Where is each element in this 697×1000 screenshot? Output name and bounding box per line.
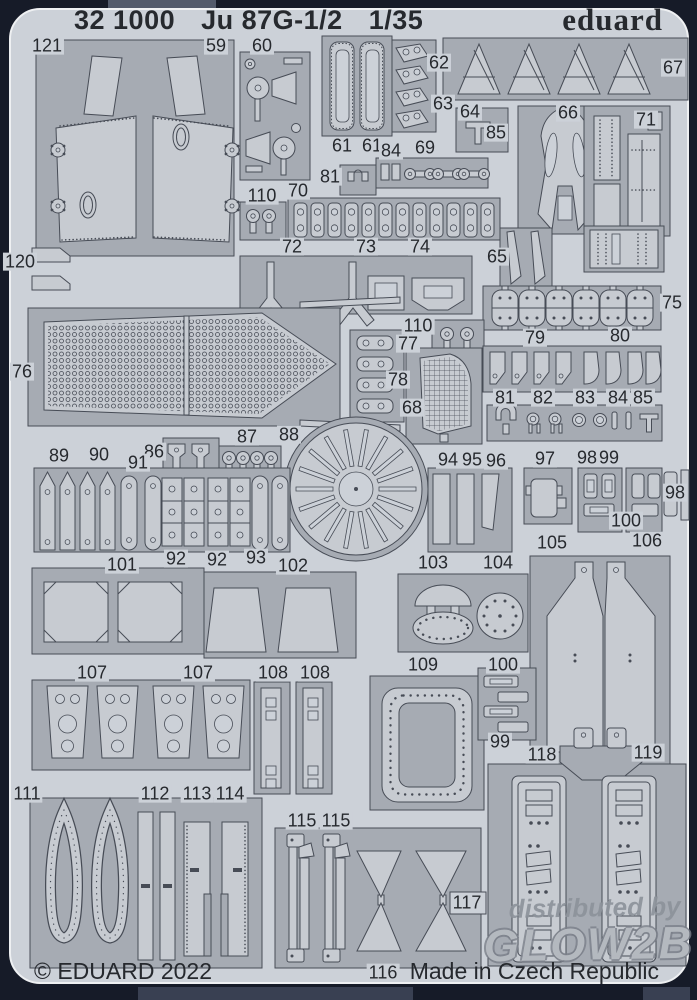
origin-text: Made in Czech Republic (410, 958, 659, 985)
group-79-80 (483, 346, 661, 392)
group-100-lower (478, 668, 536, 740)
product-photo-pe-sheet: 32 1000 Ju 87G-1/2 1/35 eduard 121596062… (0, 0, 697, 1000)
group-105-106 (530, 556, 670, 764)
group-88-fan (284, 417, 428, 561)
group-81-85-strip (487, 403, 662, 441)
pe-sheet-graphic (0, 0, 697, 1000)
group-101 (32, 568, 204, 654)
group-75 (483, 286, 661, 330)
group-103-104 (398, 574, 528, 652)
group-94-96 (428, 468, 512, 552)
group-107 (32, 680, 250, 770)
brand-logo: eduard (562, 2, 663, 38)
group-64-85 (456, 108, 508, 152)
copyright-text: © EDUARD 2022 (34, 958, 212, 985)
group-71 (584, 106, 670, 236)
group-118-119 (488, 728, 686, 966)
catalog-number: 32 1000 (74, 5, 175, 36)
group-97 (524, 468, 572, 524)
group-102 (204, 572, 356, 658)
group-70-110 (240, 198, 500, 240)
subject-name: Ju 87G-1/2 (201, 5, 343, 36)
group-111-114 (30, 798, 262, 968)
group-89-93 (34, 468, 290, 552)
group-67-cones (443, 38, 688, 100)
group-62-63 (392, 40, 436, 132)
group-84-69 (376, 158, 490, 188)
sheet-title: 32 1000 Ju 87G-1/2 1/35 (74, 5, 423, 36)
group-81-row (340, 165, 376, 195)
group-109 (370, 676, 484, 810)
group-115-117 (275, 828, 486, 968)
scale: 1/35 (369, 5, 424, 36)
group-121-59-spats (36, 40, 239, 256)
group-60 (240, 52, 310, 180)
group-61 (322, 36, 392, 136)
